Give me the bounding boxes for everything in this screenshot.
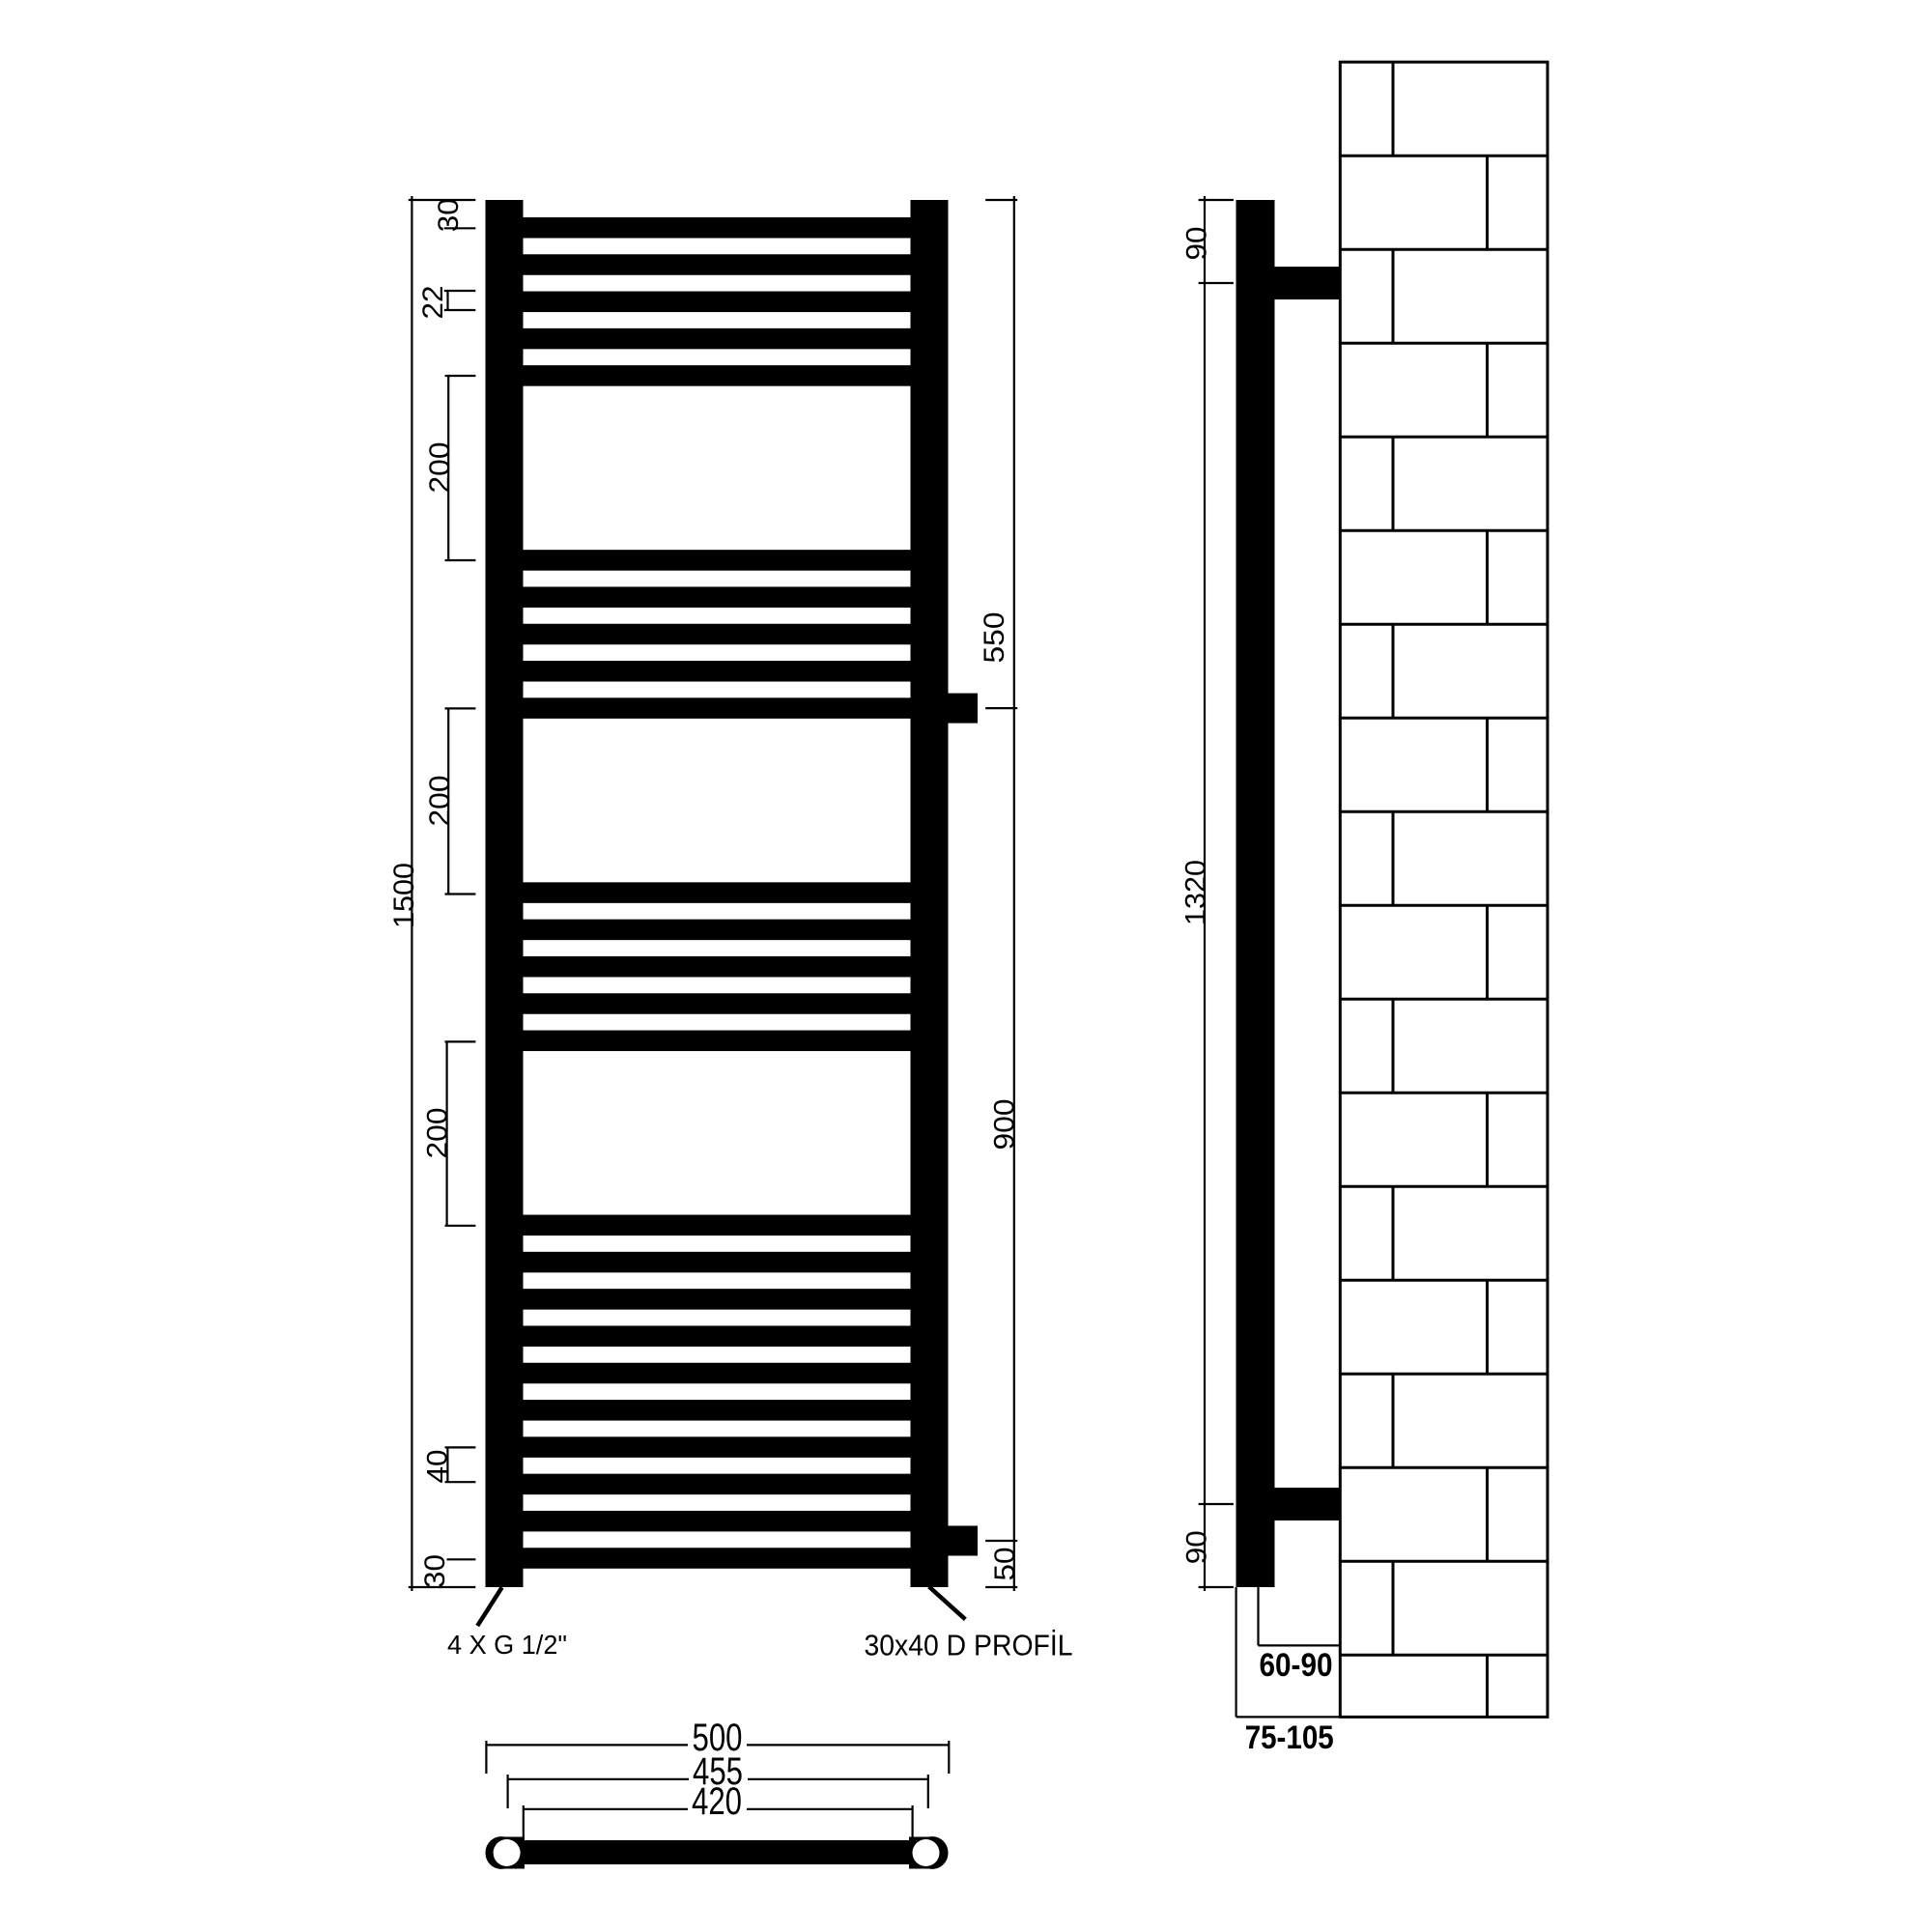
svg-text:90: 90 [1181,1530,1213,1564]
svg-text:30x40 D PROFİL: 30x40 D PROFİL [865,1629,1073,1662]
svg-text:50: 50 [989,1548,1021,1581]
svg-text:75-105: 75-105 [1245,1719,1334,1756]
svg-text:1500: 1500 [388,863,420,928]
svg-text:40: 40 [421,1450,453,1484]
svg-text:550: 550 [979,612,1010,664]
svg-text:60-90: 60-90 [1260,1647,1333,1684]
svg-text:22: 22 [417,286,449,320]
svg-text:4 X G 1/2": 4 X G 1/2" [447,1630,567,1660]
svg-text:30: 30 [419,1554,451,1588]
svg-text:900: 900 [989,1099,1021,1151]
svg-text:1320: 1320 [1179,860,1211,925]
svg-text:420: 420 [692,1780,742,1823]
svg-text:90: 90 [1181,227,1213,261]
svg-text:200: 200 [424,776,456,827]
svg-text:200: 200 [422,1108,454,1159]
svg-text:30: 30 [433,198,465,232]
svg-text:200: 200 [424,442,456,494]
